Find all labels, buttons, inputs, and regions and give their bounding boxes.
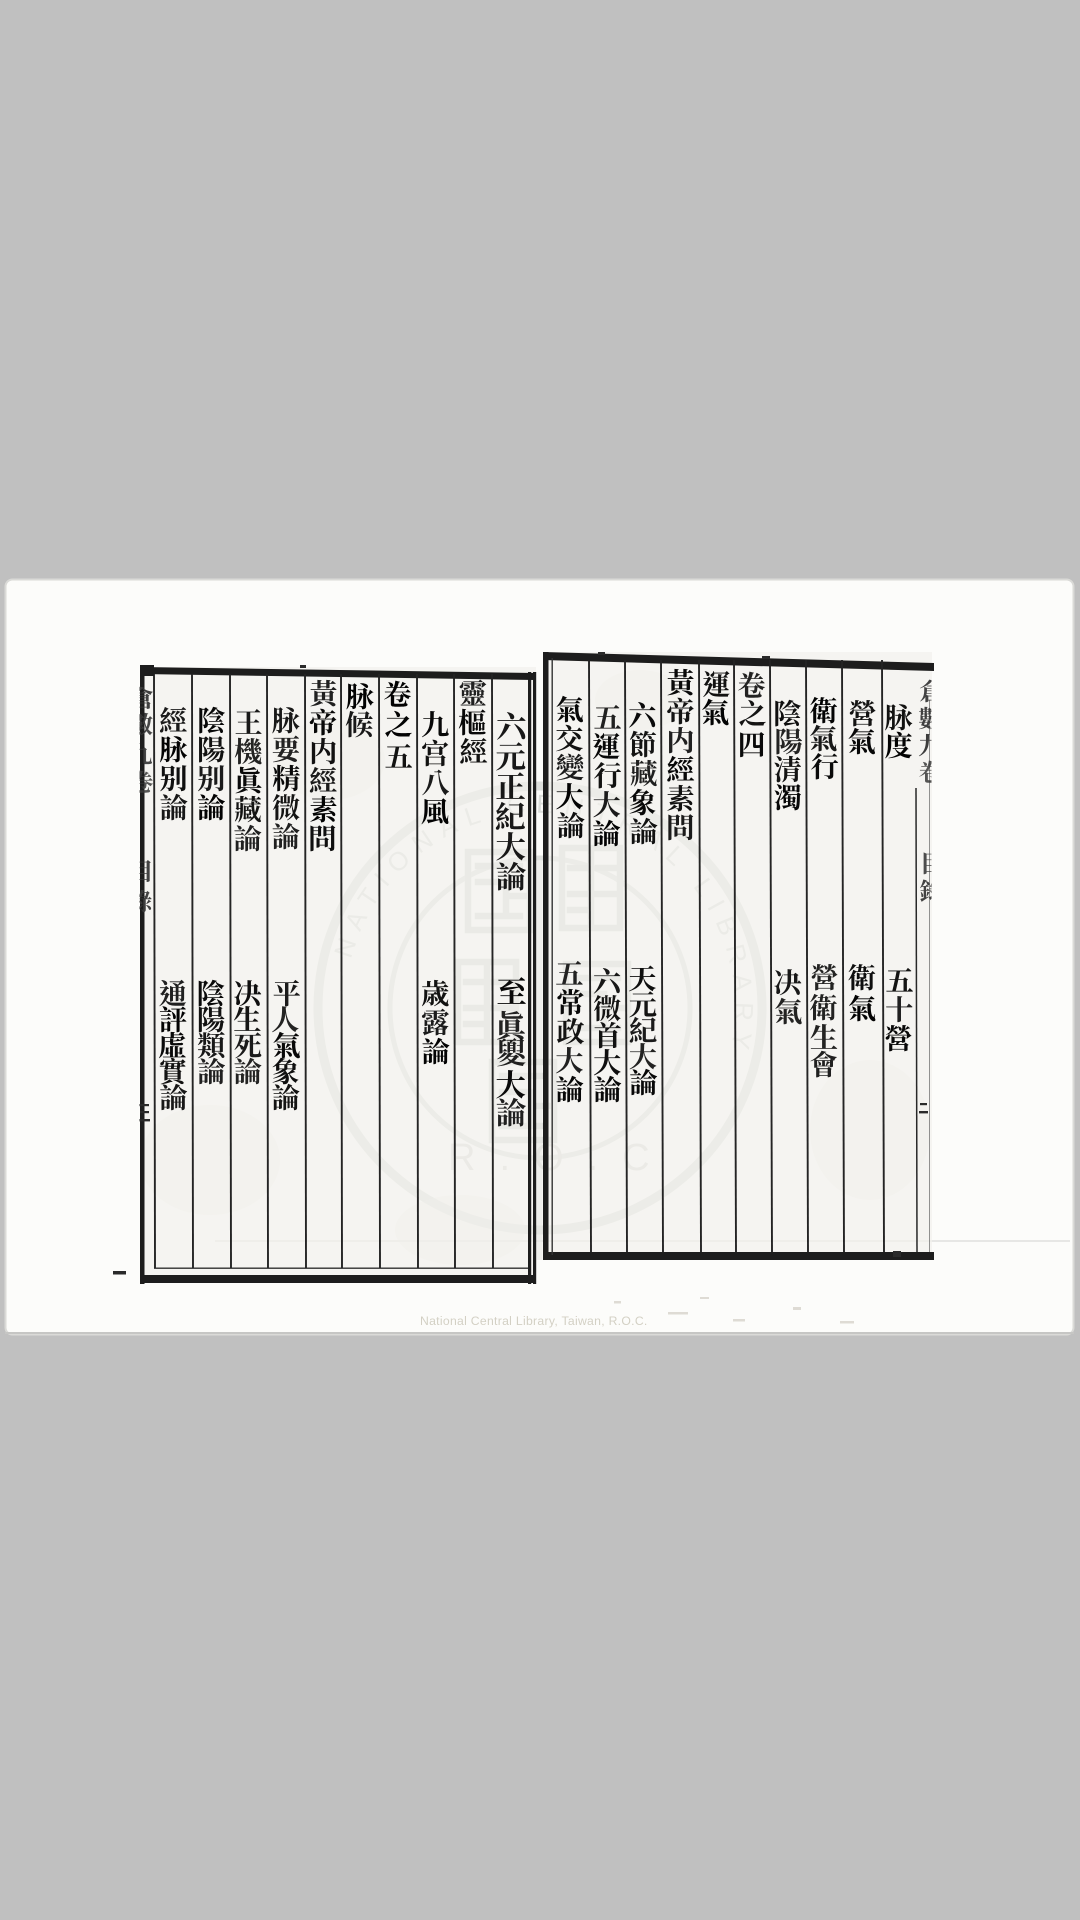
svg-text:National Central Library, Taiw: National Central Library, Taiwan, R.O.C. <box>420 1314 648 1328</box>
